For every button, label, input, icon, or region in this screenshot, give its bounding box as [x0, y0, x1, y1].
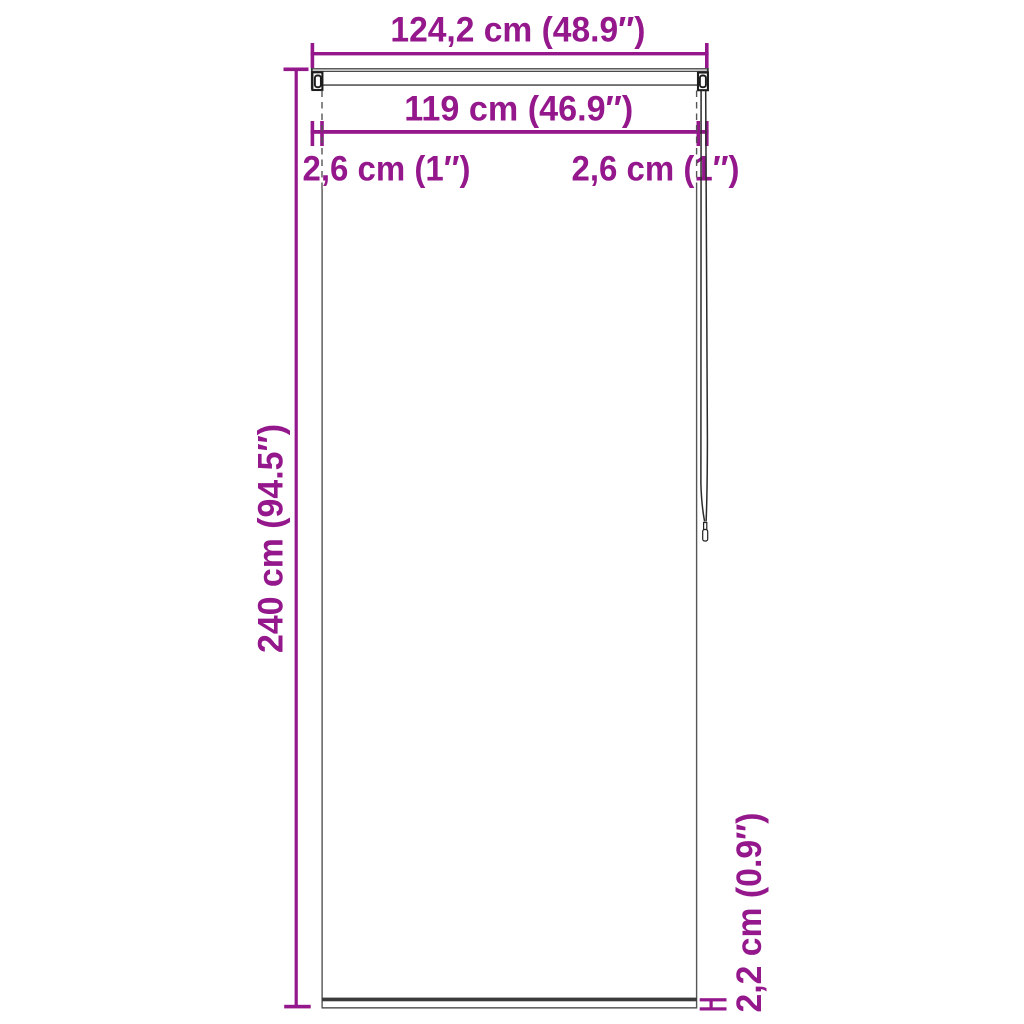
svg-text:240 cm (94.5″): 240 cm (94.5″): [252, 424, 291, 653]
svg-text:2,2 cm (0.9″): 2,2 cm (0.9″): [730, 813, 769, 1013]
svg-text:2,6 cm (1″): 2,6 cm (1″): [572, 149, 740, 188]
svg-text:124,2 cm (48.9″): 124,2 cm (48.9″): [390, 11, 645, 50]
svg-text:119 cm (46.9″): 119 cm (46.9″): [404, 90, 633, 129]
svg-text:2,6 cm (1″): 2,6 cm (1″): [303, 149, 471, 188]
